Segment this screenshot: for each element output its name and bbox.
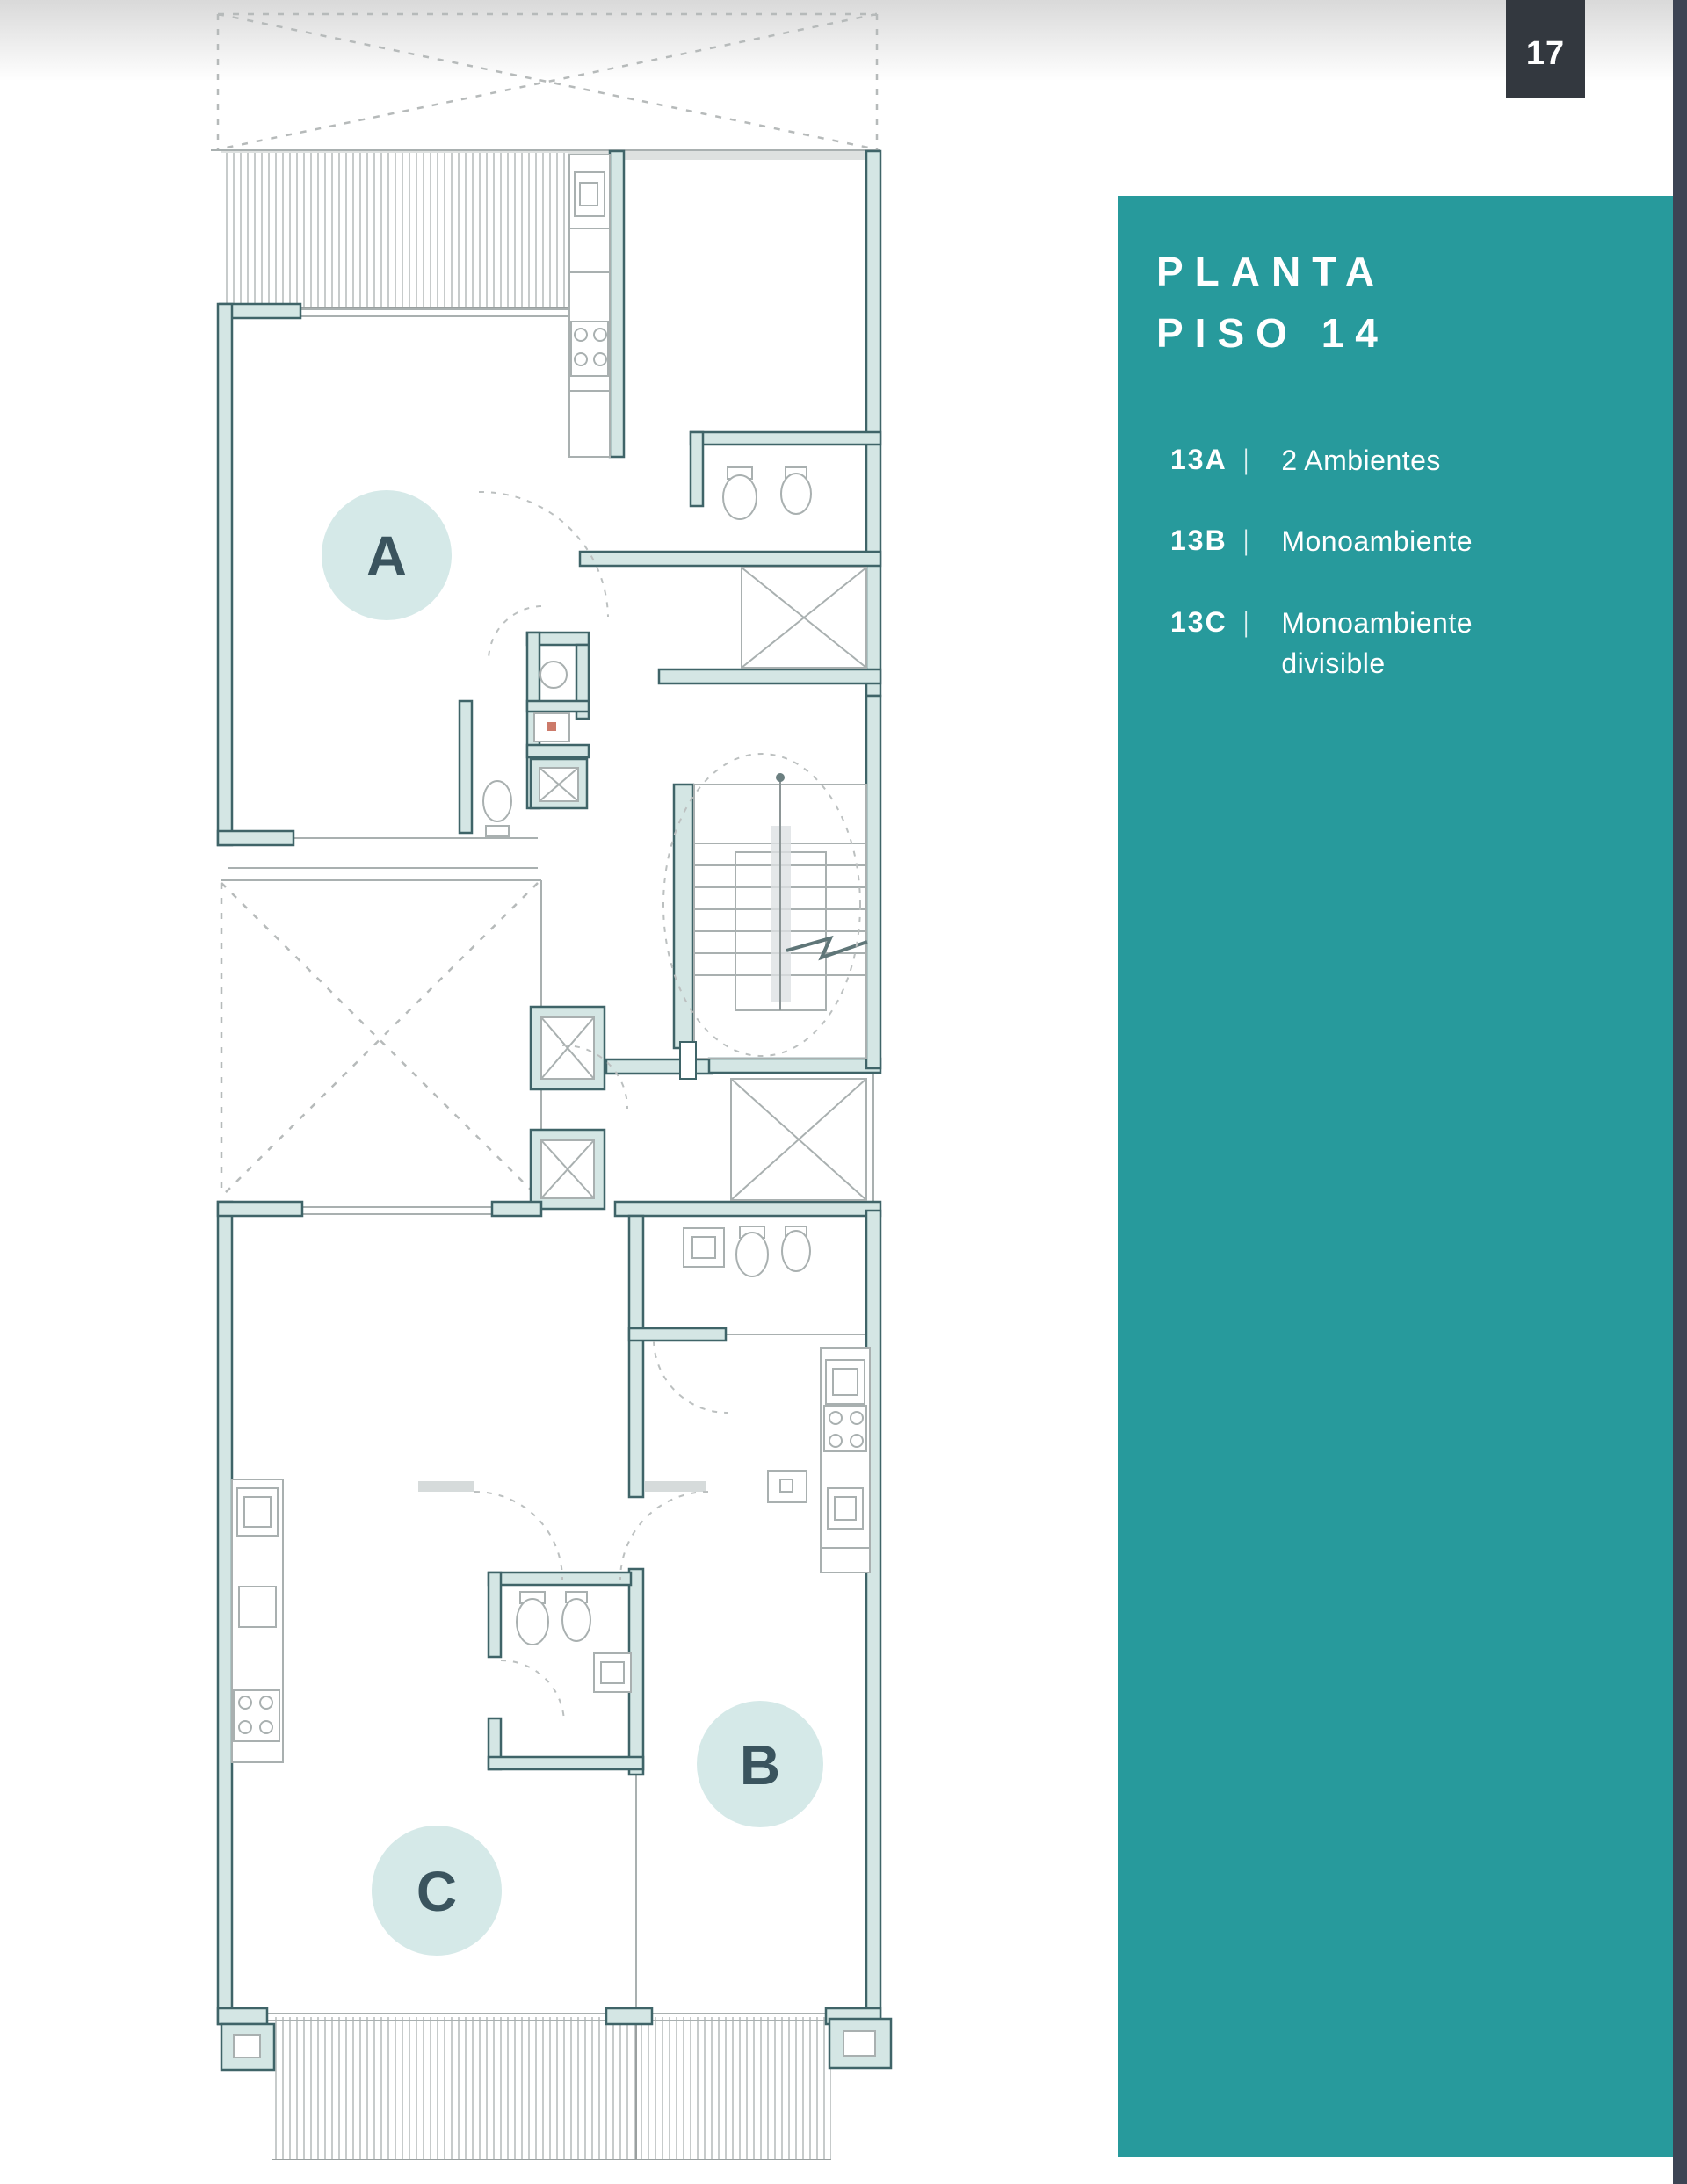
floor-plan-drawing: A B C <box>0 0 967 2184</box>
unit-a-label: A <box>366 524 407 588</box>
elevator-1-icon <box>541 1017 594 1079</box>
unit-c-label: C <box>416 1860 457 1923</box>
unit-description: Monoambiente divisible <box>1281 603 1545 684</box>
unit-b-label: B <box>740 1733 780 1797</box>
door-leaf-c <box>418 1481 474 1492</box>
unit-row-13b: 13B | Monoambiente <box>1170 521 1638 561</box>
unit-row-13a: 13A | 2 Ambientes <box>1170 440 1638 481</box>
elevator-2-icon <box>541 1140 594 1198</box>
balcony-hatch-top <box>221 153 568 307</box>
separator: | <box>1243 603 1249 642</box>
air-shaft-icon <box>731 1079 866 1200</box>
separator: | <box>1243 440 1249 480</box>
toilet-hall-icon <box>486 826 509 836</box>
page-edge-bar[interactable] <box>1673 0 1687 2184</box>
stairwell <box>694 773 867 1059</box>
panel-title: PLANTA PISO 14 <box>1156 242 1638 365</box>
panel-title-line2: PISO 14 <box>1156 303 1638 365</box>
elevator-shaft-icon <box>742 568 866 668</box>
unit-code: 13C <box>1170 603 1228 642</box>
door-leaf-b <box>645 1481 706 1492</box>
panel-title-line1: PLANTA <box>1156 242 1638 303</box>
duct-icon <box>539 768 578 801</box>
unit-row-13c: 13C | Monoambiente divisible <box>1170 603 1638 684</box>
floor-plan: A B C <box>0 0 967 2184</box>
unit-code: 13A <box>1170 440 1228 480</box>
unit-code: 13B <box>1170 521 1228 560</box>
lightwell-x-middle <box>221 883 538 1197</box>
unit-list: 13A | 2 Ambientes 13B | Monoambiente 13C… <box>1170 440 1638 684</box>
page-number-badge: 17 <box>1506 0 1585 98</box>
unit-description: 2 Ambientes <box>1281 440 1441 481</box>
info-panel: PLANTA PISO 14 13A | 2 Ambientes 13B | M… <box>1118 196 1673 2157</box>
page-number: 17 <box>1526 35 1565 73</box>
balcony-hatch-bottom <box>272 2017 831 2159</box>
separator: | <box>1243 521 1249 560</box>
sink-round-icon <box>540 662 567 688</box>
brochure-page: A B C PLANTA PISO 14 13A | 2 Ambientes 1… <box>0 0 1687 2184</box>
door-leaf-stair <box>680 1042 696 1079</box>
lightwell-x-top <box>218 14 877 149</box>
unit-description: Monoambiente <box>1281 521 1473 561</box>
